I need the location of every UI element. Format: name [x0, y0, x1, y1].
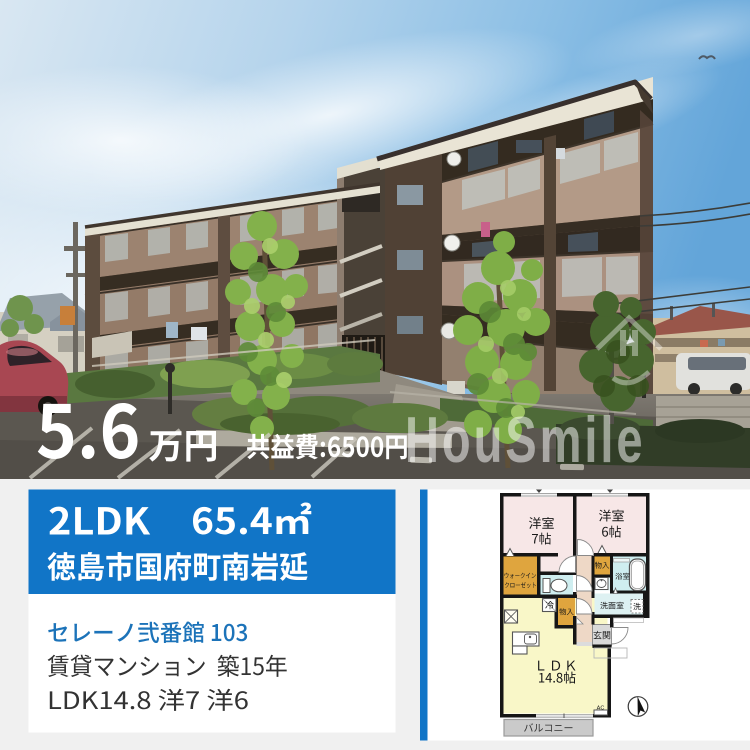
- svg-text:AC: AC: [597, 706, 605, 712]
